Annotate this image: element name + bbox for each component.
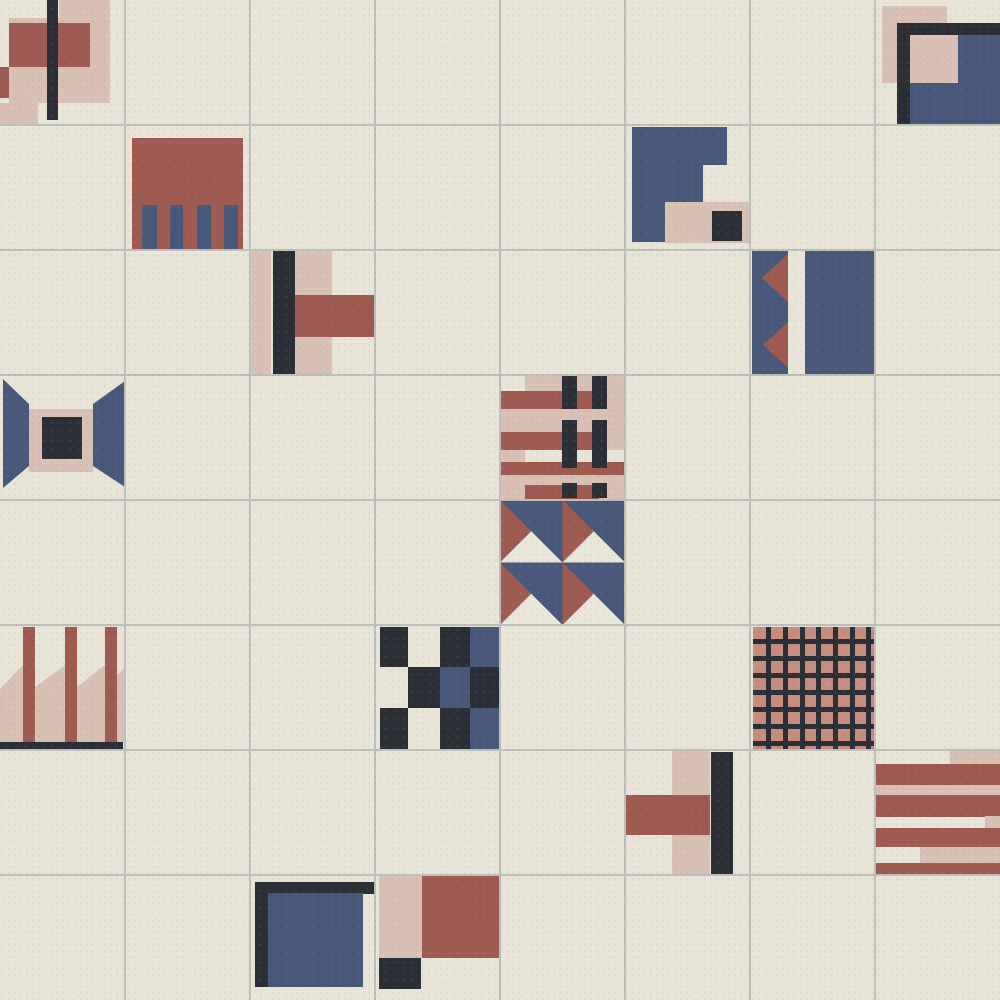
plain-tile-r1-c7 [875,125,1000,250]
plain-tile-r6-c0 [0,750,125,875]
ribbon-stripes-tile-pattern [0,625,125,750]
plain-tile-r7-c5 [625,875,750,1000]
corner-square-tile [875,0,1000,125]
fringe-block-tile-pattern [125,125,250,250]
grout-line-horizontal [0,749,1000,751]
grout-line-horizontal [0,499,1000,501]
plain-tile-r2-c7 [875,250,1000,375]
plain-tile-r7-c0 [0,875,125,1000]
waffle-grid-tile-pattern [750,625,875,750]
plain-tile-r6-c4 [500,750,625,875]
grout-line-horizontal [0,249,1000,251]
plain-tile-r3-c1 [125,375,250,500]
plain-tile-r4-c6 [750,500,875,625]
waffle-grid-tile [750,625,875,750]
steps-tile-pattern [625,125,750,250]
plain-tile-r7-c6 [750,875,875,1000]
plain-tile-r3-c3 [375,375,500,500]
plain-tile-r4-c2 [250,500,375,625]
tee-left-tile-pattern [625,750,750,875]
plain-tile-r1-c0 [0,125,125,250]
quad-blocks-tile [375,875,500,1000]
plain-tile-r5-c2 [250,625,375,750]
plain-tile-r2-c1 [125,250,250,375]
grout-line-horizontal [0,624,1000,626]
plain-tile-r7-c1 [125,875,250,1000]
grout-line-horizontal [0,374,1000,376]
plain-tile-r7-c7 [875,875,1000,1000]
tee-right-tile-pattern [250,250,375,375]
plain-tile-r0-c4 [500,0,625,125]
plain-tile-r2-c5 [625,250,750,375]
plain-tile-r2-c3 [375,250,500,375]
plain-tile-r6-c2 [250,750,375,875]
stripes-horizontal-tile [875,750,1000,875]
plain-tile-r1-c2 [250,125,375,250]
checkerboard-tile [375,625,500,750]
signal-flag-bars-tile [0,0,125,125]
plain-tile-r4-c3 [375,500,500,625]
pinwheel-triangles-tile-pattern [500,500,625,625]
corner-square-tile-pattern [875,0,1000,125]
pinwheel-triangles-tile [500,500,625,625]
plain-tile-r6-c6 [750,750,875,875]
plain-tile-r3-c5 [625,375,750,500]
plain-tile-r3-c6 [750,375,875,500]
tunnel-frame-tile-pattern [0,375,125,500]
plain-tile-r4-c5 [625,500,750,625]
plain-tile-r3-c7 [875,375,1000,500]
steps-tile [625,125,750,250]
grout-line-horizontal [0,124,1000,126]
plain-tile-r5-c1 [125,625,250,750]
plain-tile-r4-c7 [875,500,1000,625]
plain-tile-r1-c3 [375,125,500,250]
fringe-block-tile [125,125,250,250]
grout-line-horizontal [0,874,1000,876]
stripes-horizontal-tile-pattern [875,750,1000,875]
plain-tile-r0-c3 [375,0,500,125]
pennant-tile-pattern [750,250,875,375]
plain-tile-r0-c5 [625,0,750,125]
plain-tile-r5-c5 [625,625,750,750]
plain-tile-r6-c1 [125,750,250,875]
tunnel-frame-tile [0,375,125,500]
ribbon-stripes-tile [0,625,125,750]
plain-tile-r6-c3 [375,750,500,875]
plain-tile-r0-c6 [750,0,875,125]
plain-tile-r5-c4 [500,625,625,750]
quad-blocks-tile-pattern [375,875,500,1000]
plain-tile-r7-c4 [500,875,625,1000]
frame-corner-navy-tile-pattern [250,875,375,1000]
plain-tile-r1-c4 [500,125,625,250]
tile-mosaic [0,0,1000,1000]
pennant-tile [750,250,875,375]
plain-tile-r2-c4 [500,250,625,375]
plain-tile-r4-c0 [0,500,125,625]
signal-flag-bars-tile-pattern [0,0,125,125]
tee-right-tile [250,250,375,375]
plaid-weave-tile [500,375,625,500]
frame-corner-navy-tile [250,875,375,1000]
plain-tile-r3-c2 [250,375,375,500]
plain-tile-r0-c2 [250,0,375,125]
plain-tile-r2-c0 [0,250,125,375]
plain-tile-r0-c1 [125,0,250,125]
plain-tile-r5-c7 [875,625,1000,750]
plain-tile-r4-c1 [125,500,250,625]
plaid-weave-tile-pattern [500,375,625,500]
plain-tile-r1-c6 [750,125,875,250]
checkerboard-tile-pattern [375,625,500,750]
tee-left-tile [625,750,750,875]
